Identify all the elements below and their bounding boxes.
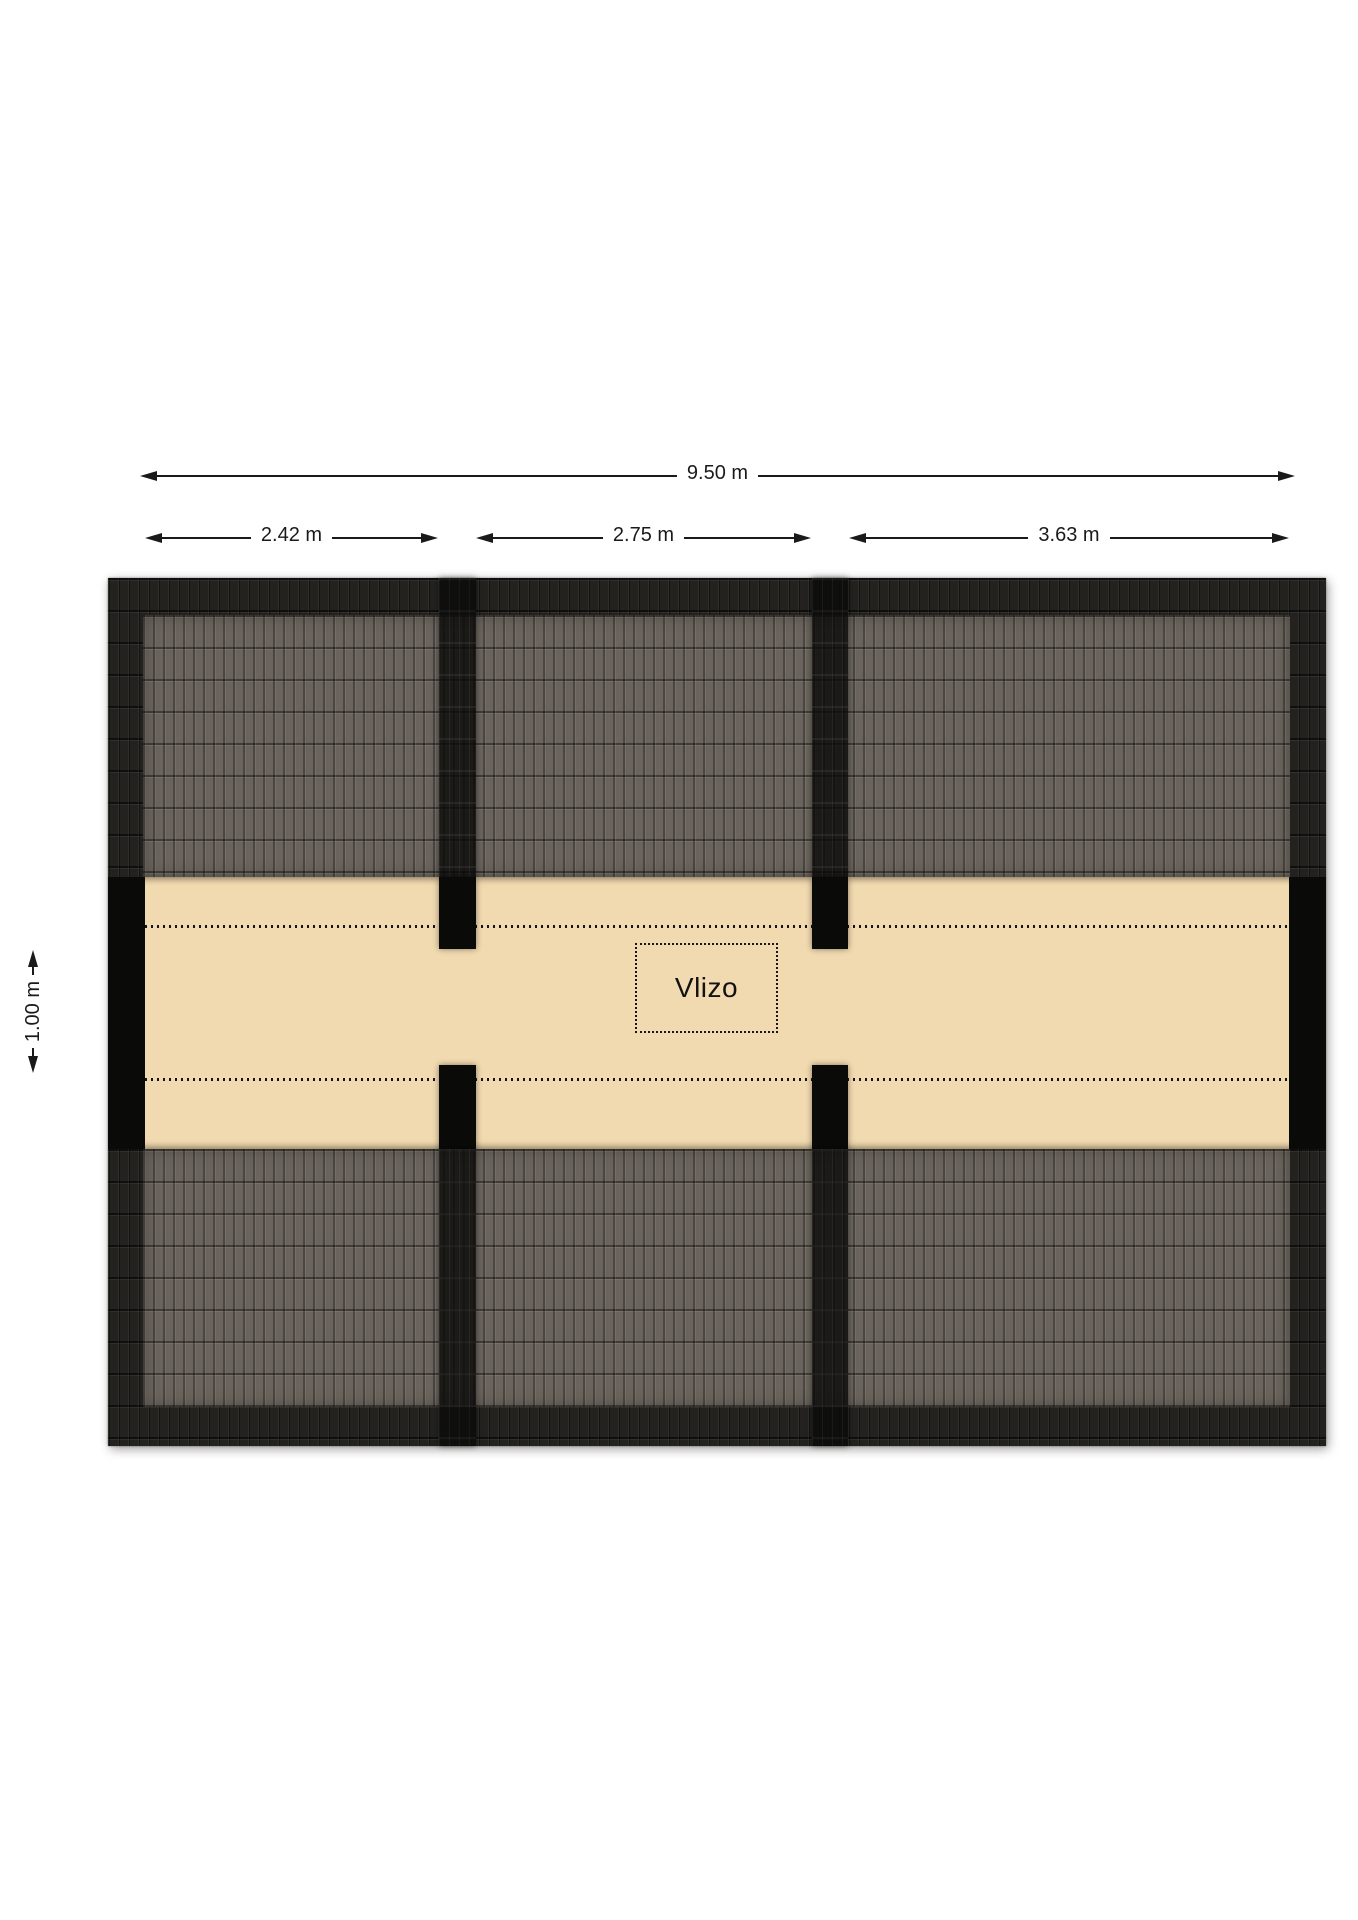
roof-tiles-bottom	[143, 1149, 1290, 1407]
dimension-segment-1: 2.42 m	[145, 525, 438, 550]
arrow-down-icon	[28, 1056, 38, 1073]
dimension-label-segment-1: 2.42 m	[251, 524, 332, 547]
dimension-total-width: 9.50 m	[140, 463, 1295, 488]
floorplan-page: 9.50 m 2.42 m 2.75 m 3.63 m 1.00 m	[0, 0, 1358, 1920]
roof-tiles-top	[143, 615, 1290, 877]
dimension-label-vertical: 1.00 m	[22, 975, 45, 1048]
arrow-left-icon	[140, 471, 157, 481]
dimension-line	[684, 537, 794, 539]
dimension-label-total: 9.50 m	[677, 462, 758, 485]
roof-wall-strip-2-top	[812, 578, 848, 877]
arrow-right-icon	[1272, 533, 1289, 543]
knee-wall-line-bottom	[145, 1078, 1289, 1081]
roof-slope-top	[108, 578, 1326, 877]
attic-floor-band: Vlizo	[108, 877, 1326, 1149]
attic-floorplan: Vlizo	[108, 578, 1326, 1446]
dimension-line	[332, 537, 421, 539]
dimension-segment-3: 3.63 m	[849, 525, 1289, 550]
arrow-right-icon	[794, 533, 811, 543]
dimension-line	[162, 537, 251, 539]
dimension-line	[493, 537, 603, 539]
wall-left	[108, 877, 145, 1149]
arrow-right-icon	[421, 533, 438, 543]
wall-stub-bottom-2	[812, 1065, 848, 1149]
dimension-line	[157, 475, 677, 477]
dimension-line	[32, 1048, 34, 1056]
wall-right	[1289, 877, 1326, 1149]
arrow-left-icon	[145, 533, 162, 543]
wall-stub-top-2	[812, 877, 848, 949]
roof-wall-strip-1-bottom	[439, 1149, 476, 1446]
roof-wall-strip-2-bottom	[812, 1149, 848, 1446]
arrow-left-icon	[476, 533, 493, 543]
dimension-label-segment-3: 3.63 m	[1028, 524, 1109, 547]
dimension-line	[32, 967, 34, 975]
roof-slope-bottom	[108, 1149, 1326, 1446]
room-label: Vlizo	[675, 972, 738, 1004]
dimension-line	[758, 475, 1278, 477]
arrow-right-icon	[1278, 471, 1295, 481]
roof-wall-strip-1-top	[439, 578, 476, 877]
knee-wall-line-top	[145, 925, 1289, 928]
arrow-up-icon	[28, 950, 38, 967]
loft-hatch-outline: Vlizo	[635, 943, 778, 1033]
dimension-line	[866, 537, 1028, 539]
arrow-left-icon	[849, 533, 866, 543]
dimension-segment-2: 2.75 m	[476, 525, 811, 550]
wall-stub-top-1	[439, 877, 476, 949]
dimension-line	[1110, 537, 1272, 539]
wall-stub-bottom-1	[439, 1065, 476, 1149]
dimension-vertical-height: 1.00 m	[18, 950, 48, 1073]
dimension-label-segment-2: 2.75 m	[603, 524, 684, 547]
